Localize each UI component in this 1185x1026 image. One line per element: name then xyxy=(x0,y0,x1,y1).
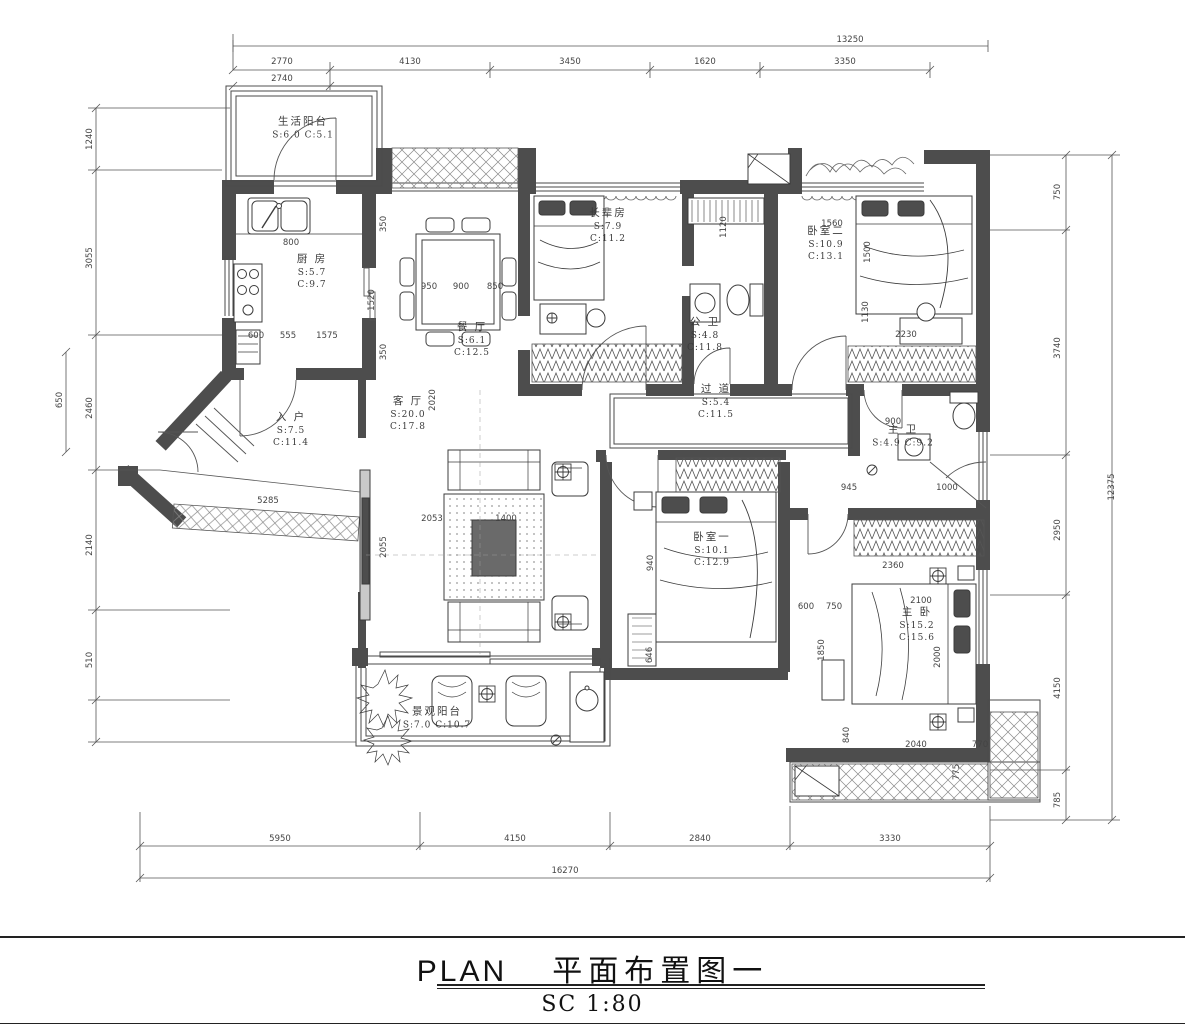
kitchen-cooktop xyxy=(234,264,262,364)
plants xyxy=(357,670,412,765)
master-bath-fixtures xyxy=(898,392,978,460)
separator-line-top xyxy=(0,936,1185,938)
bedroom2-bed xyxy=(856,196,972,314)
kitchen-sink xyxy=(248,198,310,234)
elder-room-desk xyxy=(540,304,605,334)
bedroom1-bed xyxy=(628,492,776,666)
public-bath-fixtures xyxy=(688,198,764,322)
scale-row: SC 1:80 xyxy=(0,992,1185,1017)
dining-table xyxy=(400,218,516,346)
scale-label: SC 1:80 xyxy=(541,992,643,1017)
title-underline-1 xyxy=(437,984,985,986)
balcony-furniture xyxy=(432,672,604,742)
master-bed xyxy=(822,566,976,722)
separator-line-bottom xyxy=(0,1023,1185,1024)
floor-plan-drawing xyxy=(0,0,1185,1026)
elder-room-bed xyxy=(534,196,604,300)
floor-plan-sheet: 生活阳台S:6.0 C:5.1厨 房S:5.7C:9.7餐 厅S:6.1C:12… xyxy=(0,0,1185,1026)
living-room-set xyxy=(360,450,588,642)
title-underline-2 xyxy=(437,988,985,989)
